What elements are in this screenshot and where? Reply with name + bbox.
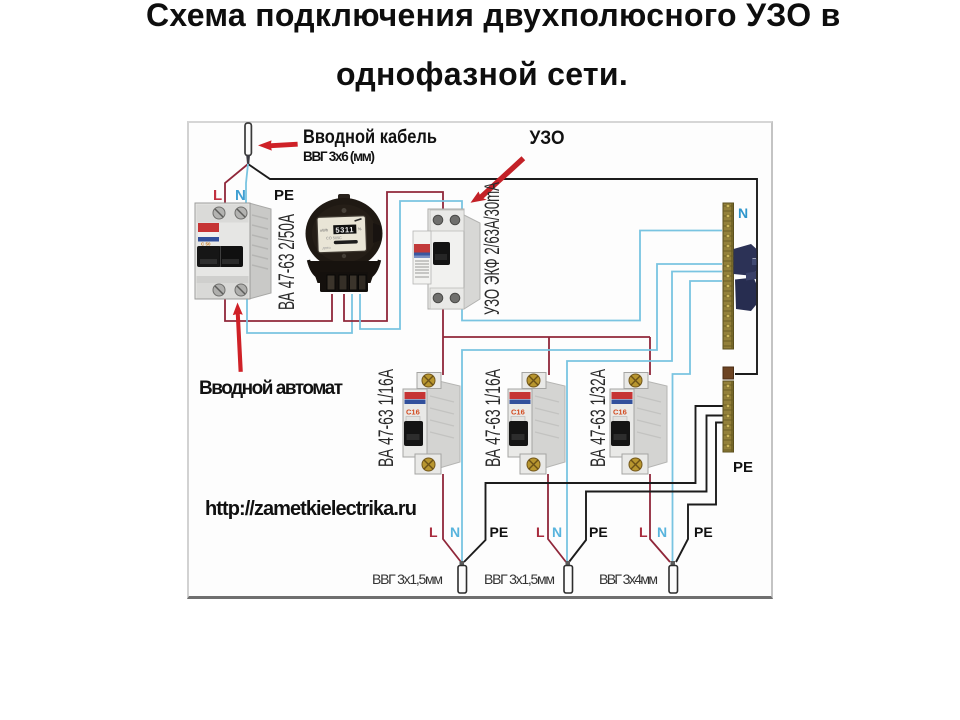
svg-text:N: N <box>450 524 460 540</box>
svg-text:L: L <box>213 187 222 204</box>
svg-text:PE: PE <box>733 459 753 476</box>
svg-text:ВА 47-63 2/50А: ВА 47-63 2/50А <box>274 214 299 310</box>
svg-text:L: L <box>639 524 648 540</box>
svg-text:C16: C16 <box>406 408 420 417</box>
svg-text:ВА 47-63 1/16А: ВА 47-63 1/16А <box>374 369 398 467</box>
svg-text:СО 505С: СО 505С <box>326 236 342 241</box>
svg-text:PE: PE <box>274 187 294 204</box>
svg-text:C 50: C 50 <box>201 242 211 247</box>
svg-text:ВА 47-63 1/16А: ВА 47-63 1/16А <box>481 369 505 467</box>
svg-text:C16: C16 <box>511 408 525 417</box>
svg-text:дпто: дпто <box>322 246 330 250</box>
svg-text:Вводной автомат: Вводной автомат <box>199 378 343 399</box>
svg-text:L: L <box>536 524 545 540</box>
svg-text:5311: 5311 <box>335 225 354 235</box>
svg-text:кWh: кWh <box>320 227 328 232</box>
svg-text:http://zametkielectrika.ru: http://zametkielectrika.ru <box>205 498 417 520</box>
svg-text:ВА 47-63 1/32А: ВА 47-63 1/32А <box>586 369 610 467</box>
svg-text:N: N <box>552 524 562 540</box>
svg-text:N: N <box>738 205 748 221</box>
svg-text:ВВГ 3х6 (мм): ВВГ 3х6 (мм) <box>303 149 375 164</box>
svg-text:УЗО ЭКФ 2/63А/30mA: УЗО ЭКФ 2/63А/30mA <box>481 182 504 315</box>
svg-text:PE: PE <box>589 524 608 540</box>
svg-text:C16: C16 <box>613 408 627 417</box>
svg-text:УЗО: УЗО <box>530 128 565 149</box>
svg-text:N: N <box>657 524 667 540</box>
svg-text:N: N <box>235 187 246 204</box>
svg-text:PE: PE <box>490 524 509 540</box>
svg-text:ВВГ 3х1,5мм: ВВГ 3х1,5мм <box>484 571 555 587</box>
svg-text:ВВГ 3х4мм: ВВГ 3х4мм <box>599 571 658 587</box>
svg-text:PE: PE <box>694 524 713 540</box>
svg-text:Вводной кабель: Вводной кабель <box>303 127 437 148</box>
svg-text:ВВГ 3х1,5мм: ВВГ 3х1,5мм <box>372 571 443 587</box>
svg-text:%: % <box>358 226 362 231</box>
svg-text:L: L <box>429 524 438 540</box>
